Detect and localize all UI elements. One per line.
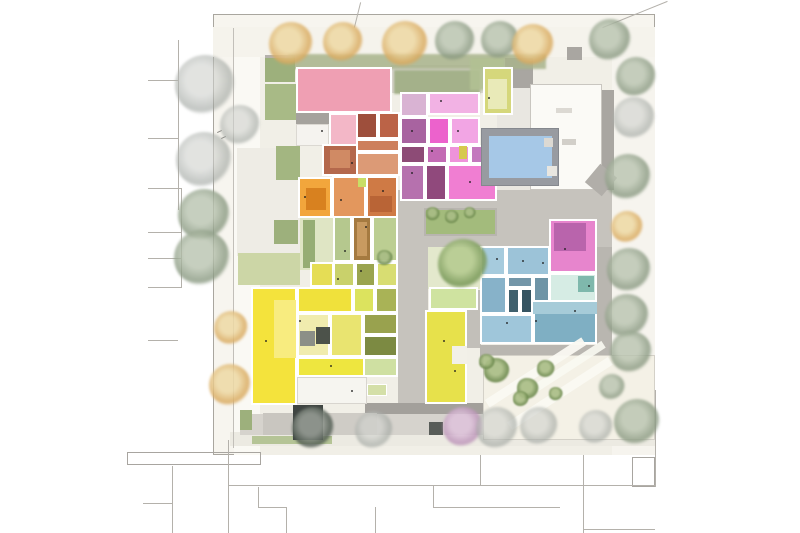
terracotta-room bbox=[356, 112, 378, 139]
neighbor-line bbox=[228, 485, 480, 486]
magenta-room bbox=[400, 145, 426, 164]
gray-roof-hut bbox=[567, 47, 582, 60]
neighbor-line bbox=[178, 40, 179, 210]
magenta-room bbox=[425, 164, 447, 201]
mint-teal-cell bbox=[578, 276, 594, 292]
rooftop-fixture bbox=[556, 108, 572, 113]
site-plan-drawing bbox=[0, 0, 800, 533]
magenta-room bbox=[428, 117, 450, 145]
neighbor-line bbox=[655, 390, 656, 487]
tree-sage bbox=[599, 374, 625, 400]
shrub bbox=[464, 207, 476, 219]
planting-bed bbox=[276, 146, 300, 180]
magenta-room bbox=[400, 117, 428, 145]
neighbor-line bbox=[172, 466, 173, 533]
louvre-wall bbox=[263, 413, 293, 435]
tree-sage bbox=[616, 57, 656, 97]
tree-gray bbox=[476, 407, 518, 449]
neighbor-line bbox=[148, 188, 181, 189]
tree-tan bbox=[209, 364, 251, 406]
stripe-room-green bbox=[333, 216, 352, 262]
utility-box bbox=[632, 457, 655, 487]
shrub bbox=[426, 207, 440, 221]
neighbor-line bbox=[148, 232, 181, 233]
neighbor-line bbox=[148, 287, 181, 288]
tree-gray bbox=[579, 410, 613, 444]
tree-tan bbox=[323, 22, 363, 62]
terracotta-room bbox=[378, 112, 400, 139]
yellow-room bbox=[330, 313, 363, 357]
tree-sage bbox=[589, 19, 631, 61]
central-path bbox=[398, 247, 428, 407]
tree-sage bbox=[610, 331, 652, 373]
tree-gray bbox=[176, 132, 232, 188]
neighbor-step bbox=[258, 507, 286, 508]
shrub bbox=[479, 354, 495, 370]
tree-tan bbox=[382, 21, 428, 67]
yellow-cell bbox=[353, 287, 375, 313]
tree-gray bbox=[175, 55, 235, 115]
tree-gray bbox=[520, 407, 558, 445]
tree-sage bbox=[605, 154, 651, 200]
lift-core bbox=[459, 146, 467, 159]
olive-room bbox=[363, 313, 398, 335]
magenta-room bbox=[450, 117, 480, 145]
gray-annex bbox=[296, 113, 329, 124]
olive-room bbox=[363, 335, 398, 357]
pool-water bbox=[489, 136, 552, 178]
teal-room bbox=[507, 276, 533, 288]
neighbor-line bbox=[148, 340, 178, 341]
terracotta-room bbox=[356, 139, 400, 152]
pale-green-room bbox=[363, 357, 398, 377]
tree-sage bbox=[435, 21, 475, 61]
tree-gray bbox=[613, 97, 655, 139]
gray-cell bbox=[300, 331, 315, 346]
tree-gray bbox=[355, 411, 393, 449]
tree-sage bbox=[614, 399, 660, 445]
planting-bed bbox=[240, 410, 252, 430]
magenta-room bbox=[428, 92, 480, 115]
magenta-room bbox=[400, 164, 425, 201]
neighbor-line bbox=[148, 80, 178, 81]
teal-room-dark bbox=[507, 288, 520, 314]
tree-tan bbox=[611, 211, 643, 243]
shrub bbox=[549, 387, 563, 401]
olive-cell bbox=[333, 262, 355, 287]
olive-cell bbox=[355, 262, 376, 287]
neighbor-line bbox=[143, 503, 173, 504]
utility-dark-box bbox=[429, 422, 443, 435]
neighbor-line bbox=[148, 138, 178, 139]
sidewalk-box bbox=[127, 452, 261, 465]
tree-sage bbox=[607, 248, 651, 292]
tree-tan bbox=[269, 22, 313, 66]
neighbor-step bbox=[258, 487, 259, 507]
neighbor-step bbox=[433, 485, 434, 507]
neighbor-line bbox=[583, 455, 584, 533]
pale-green-cell bbox=[367, 384, 387, 396]
garden-band-north bbox=[394, 70, 480, 94]
olive-cell bbox=[310, 262, 334, 287]
yellow-room bbox=[297, 287, 353, 313]
teal-room-dark bbox=[520, 288, 533, 314]
neighbor-step bbox=[286, 507, 287, 533]
neighbor-line bbox=[375, 507, 376, 533]
tree-sage bbox=[174, 230, 230, 286]
planting-bed bbox=[265, 84, 297, 120]
shrub bbox=[513, 391, 529, 407]
neighbor-line bbox=[583, 529, 655, 530]
chartreuse-l-green-room bbox=[429, 287, 478, 310]
shrub bbox=[377, 250, 393, 266]
rooftop-fixture bbox=[544, 138, 553, 147]
teal-room bbox=[480, 314, 533, 344]
tree-green bbox=[438, 239, 488, 289]
tree-tan bbox=[214, 311, 248, 345]
rooftop-fixture bbox=[562, 139, 576, 145]
orange-inner bbox=[370, 196, 392, 212]
yellow-inner bbox=[274, 300, 296, 358]
yellow-room bbox=[297, 357, 367, 377]
chartreuse-inner bbox=[488, 79, 507, 109]
teal-room-large-top bbox=[533, 302, 597, 314]
planter-strip bbox=[303, 220, 315, 268]
orange-inner bbox=[306, 188, 326, 210]
white-room-south bbox=[297, 377, 367, 404]
tree-tan bbox=[512, 24, 554, 66]
tree-dark bbox=[292, 407, 334, 449]
pink-block-inner bbox=[554, 223, 586, 251]
terracotta-inner bbox=[330, 150, 350, 168]
magenta-room bbox=[426, 145, 448, 164]
lawn-west bbox=[238, 253, 300, 285]
neighbor-line bbox=[228, 440, 229, 533]
pool-steps bbox=[547, 166, 557, 176]
pink-roof-bar bbox=[296, 67, 392, 113]
teal-room bbox=[506, 246, 550, 276]
olive-cell bbox=[375, 287, 398, 313]
tree-gray bbox=[220, 105, 260, 145]
terracotta-room bbox=[356, 152, 400, 176]
teal-room bbox=[480, 276, 507, 314]
neighbor-line bbox=[433, 507, 560, 508]
magenta-room bbox=[400, 92, 428, 117]
site-plan-figure bbox=[0, 0, 800, 533]
white-room bbox=[296, 124, 329, 146]
shrub bbox=[445, 210, 459, 224]
neighbor-line bbox=[480, 485, 655, 486]
teal-stairs bbox=[558, 318, 590, 340]
teal-room bbox=[533, 276, 550, 302]
neighbor-line bbox=[480, 455, 481, 485]
planting-bed bbox=[274, 220, 298, 244]
chartreuse-l-white-cell bbox=[452, 346, 467, 364]
shrub bbox=[537, 360, 555, 378]
